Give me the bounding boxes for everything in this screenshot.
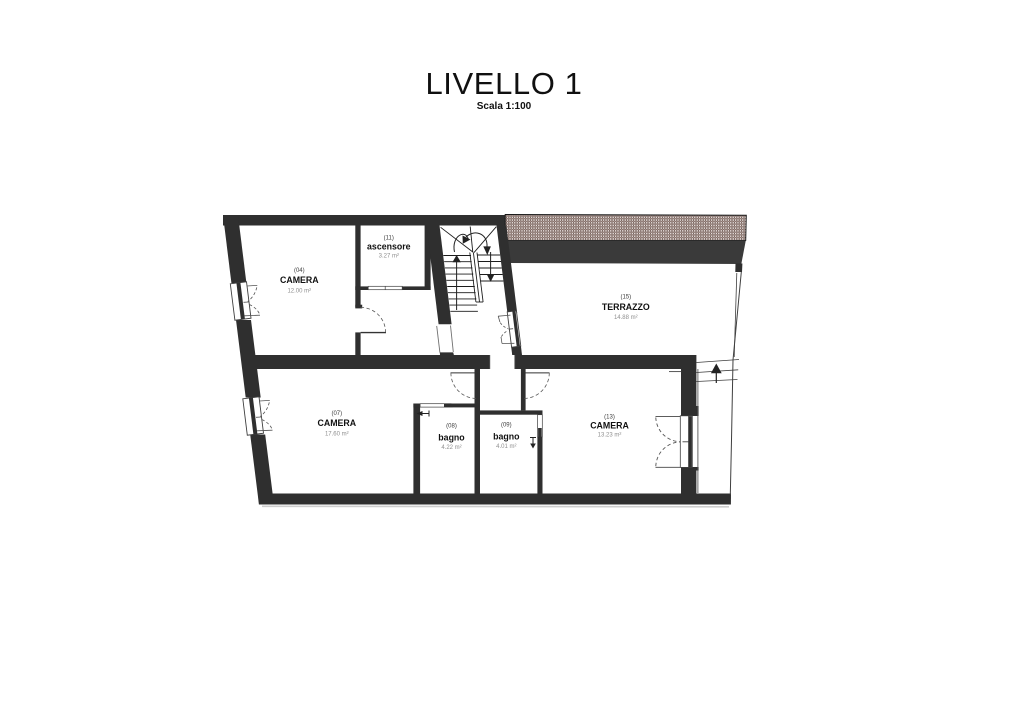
svg-text:4.01 m²: 4.01 m²	[496, 444, 516, 450]
svg-text:(15): (15)	[620, 295, 631, 301]
svg-text:CAMERA: CAMERA	[590, 421, 629, 431]
svg-text:bagno: bagno	[438, 433, 465, 443]
svg-text:13.23 m²: 13.23 m²	[598, 433, 622, 439]
svg-text:CAMERA: CAMERA	[280, 275, 319, 285]
svg-text:3.27 m²: 3.27 m²	[379, 254, 399, 260]
svg-text:TERRAZZO: TERRAZZO	[602, 302, 650, 312]
svg-text:(08): (08)	[446, 424, 457, 430]
svg-text:Scala 1:100: Scala 1:100	[477, 101, 532, 112]
svg-text:(04): (04)	[294, 268, 305, 274]
svg-text:(07): (07)	[331, 411, 342, 417]
svg-text:14.88 m²: 14.88 m²	[614, 315, 638, 321]
svg-text:ascensore: ascensore	[367, 242, 411, 252]
svg-text:bagno: bagno	[493, 432, 520, 442]
svg-text:CAMERA: CAMERA	[317, 418, 356, 428]
svg-text:17.60 m²: 17.60 m²	[325, 432, 349, 438]
svg-text:12.00 m²: 12.00 m²	[287, 289, 311, 295]
svg-text:4.22 m²: 4.22 m²	[441, 445, 461, 451]
svg-text:(09): (09)	[501, 423, 512, 429]
svg-text:LIVELLO 1: LIVELLO 1	[425, 66, 582, 101]
